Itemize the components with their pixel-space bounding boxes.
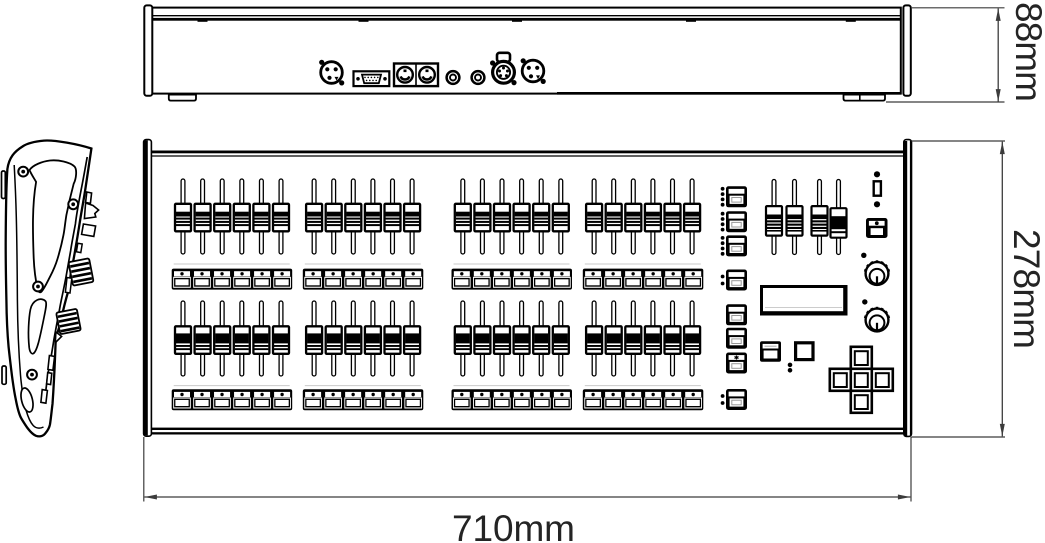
svg-text:88mm: 88mm — [1008, 2, 1045, 102]
svg-text:710mm: 710mm — [452, 508, 575, 543]
svg-text:278mm: 278mm — [1006, 229, 1045, 349]
